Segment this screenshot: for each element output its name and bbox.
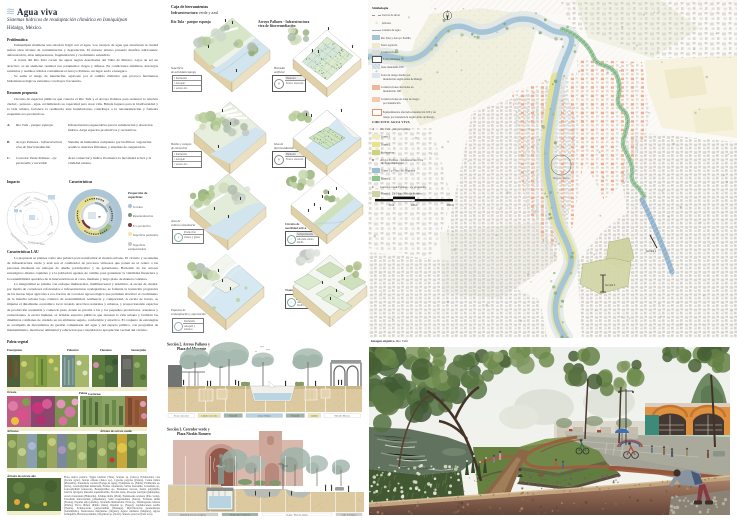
svg-text:Mercado Morelos: Mercado Morelos <box>334 415 350 417</box>
svg-text:Calle N. Romero: Calle N. Romero <box>342 514 358 516</box>
svg-text:Humedal: Humedal <box>229 415 237 417</box>
svg-text:Plaza Nicolás Romero: Plaza Nicolás Romero <box>177 432 211 436</box>
svg-text:Transformación urbana: Transformación urbana <box>9 233 29 250</box>
svg-text:Sección 2. Arroyo Pallares y: Sección 2. Arroyo Pallares y <box>167 343 210 347</box>
svg-text:200 m: 200 m <box>447 204 454 207</box>
svg-text:Arroyo Pallares: Arroyo Pallares <box>257 414 271 417</box>
svg-text:Humedal: Humedal <box>291 415 299 417</box>
svg-text:≋: ≋ <box>98 215 101 219</box>
svg-text:Plancha de acceso a la iglesia: Plancha de acceso a la iglesia <box>180 513 206 516</box>
svg-text:Imagen objetivo: Imagen objetivo <box>553 177 571 180</box>
svg-text:Frente mix / Comercio: Frente mix / Comercio <box>230 514 251 516</box>
svg-text:Salud: Salud <box>47 231 54 237</box>
svg-text:≈: ≈ <box>37 218 39 221</box>
svg-text:Gestión del agua: Gestión del agua <box>28 241 46 246</box>
svg-text:Sección 3. Corredor verde y: Sección 3. Corredor verde y <box>167 428 210 432</box>
svg-text:Economía: Economía <box>49 216 54 227</box>
svg-text:Andador recreativo: Andador recreativo <box>201 414 219 417</box>
svg-text:Juegos / Plaza de paisaje: Juegos / Plaza de paisaje <box>286 513 308 516</box>
svg-text:Sección 3: Sección 3 <box>605 284 616 287</box>
svg-text:Sección 2: Sección 2 <box>646 250 657 253</box>
svg-text:Andador: Andador <box>310 414 318 417</box>
svg-text:100 m: 100 m <box>411 204 418 207</box>
svg-text:Biodiversidad: Biodiversidad <box>34 197 49 204</box>
svg-text:Frente comercial: Frente comercial <box>174 415 189 417</box>
svg-text:50 m: 50 m <box>389 204 394 207</box>
svg-text:Vida urbana: Vida urbana <box>21 224 28 235</box>
